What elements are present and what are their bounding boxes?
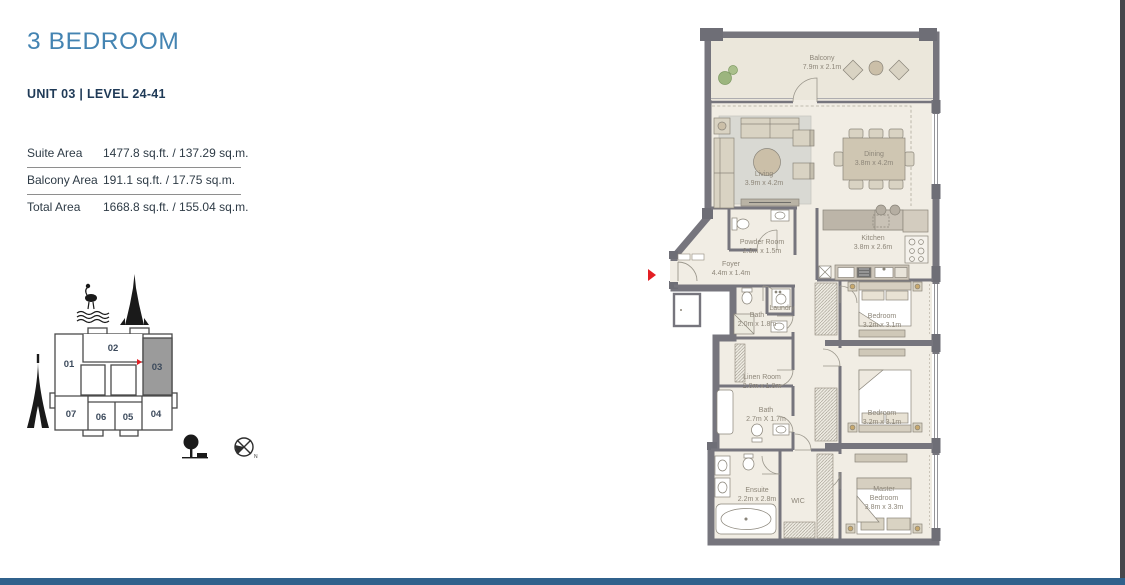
area-label: Balcony Area — [27, 173, 103, 187]
unit-label-03: 03 — [152, 362, 163, 373]
plant-icon — [719, 72, 732, 85]
room-dims-living: 3.9m x 4.2m — [745, 180, 784, 187]
room-label-bath-1: Bath — [750, 312, 765, 319]
room-label-wic: WIC — [791, 498, 805, 505]
area-row-balcony: Balcony Area 191.1 sq.ft. / 17.75 sq.m. — [27, 168, 241, 195]
unit-number-level: UNIT 03 | LEVEL 24-41 — [27, 87, 166, 101]
area-value: 1477.8 sq.ft. / 137.29 sq.m. — [103, 146, 248, 160]
room-dims-ensuite: 2.2m x 2.8m — [738, 496, 777, 503]
area-row-total: Total Area 1668.8 sq.ft. / 155.04 sq.m. — [27, 195, 241, 221]
unit-label-07: 07 — [66, 409, 77, 420]
floor-plan: Balcony 7.9m x 2.1m Living 3.9m x 4.2m D… — [645, 18, 965, 553]
area-value: 191.1 sq.ft. / 17.75 sq.m. — [103, 173, 241, 187]
unit-label-04: 04 — [151, 409, 162, 420]
entrance-arrow-icon — [648, 269, 656, 281]
service-box — [674, 294, 700, 326]
tower-icon — [27, 354, 49, 428]
room-label-bedroom-2: Bedroom — [868, 410, 897, 417]
room-label-linen-room: Linen Room — [743, 374, 781, 381]
room-dims-powder-room: 2.3m x 1.5m — [743, 248, 782, 255]
unit-label-01: 01 — [64, 359, 75, 370]
room-dims-bath-2: 2.7m X 1.7m — [746, 416, 786, 423]
room-label-bedroom-1: Bedroom — [868, 313, 897, 320]
room-dims-foyer: 4.4m x 1.4m — [712, 270, 751, 277]
unit-label-02: 02 — [108, 343, 119, 354]
floorplan-page: 3 BEDROOM UNIT 03 | LEVEL 24-41 Suite Ar… — [0, 0, 1125, 585]
room-dims-bedroom-1: 3.2m x 3.1m — [863, 322, 902, 329]
room-label-laundry: Laundry — [769, 305, 795, 312]
area-label: Suite Area — [27, 146, 103, 160]
right-edge-bar — [1120, 0, 1125, 578]
room-label-kitchen: Kitchen — [861, 235, 884, 242]
room-label-balcony: Balcony — [810, 55, 835, 62]
page-title: 3 BEDROOM — [27, 28, 179, 56]
room-label-bath-2: Bath — [759, 407, 774, 414]
area-row-suite: Suite Area 1477.8 sq.ft. / 137.29 sq.m. — [27, 141, 241, 168]
room-label-living: Living — [755, 171, 773, 178]
flamingo-icon — [77, 284, 109, 323]
unit-label-05: 05 — [123, 412, 134, 423]
room-dims-bath-1: 2.0m x 1.8m — [738, 321, 777, 328]
room-label-foyer: Foyer — [722, 261, 741, 268]
area-table: Suite Area 1477.8 sq.ft. / 137.29 sq.m. … — [27, 141, 241, 221]
burj-tower-icon — [120, 274, 149, 325]
area-value: 1668.8 sq.ft. / 155.04 sq.m. — [103, 200, 248, 214]
room-dims-bedroom-2: 3.2m x 3.1m — [863, 419, 902, 426]
area-label: Total Area — [27, 200, 103, 214]
compass-icon — [235, 438, 253, 456]
room-dims-balcony: 7.9m x 2.1m — [803, 64, 842, 71]
room-label-dining: Dining — [864, 151, 884, 158]
footer-bar — [0, 578, 1125, 585]
bedroom-divider-wall — [825, 340, 933, 346]
room-dims-kitchen: 3.8m x 2.6m — [854, 244, 893, 251]
room-label-ensuite: Ensuite — [745, 487, 768, 494]
compass-north-label: N — [254, 454, 258, 460]
key-plan: 01 02 03 04 05 06 07 N — [25, 272, 265, 462]
room-label-powder-room: Powder Room — [740, 239, 785, 246]
room-dims-master-bedroom: 3.8m x 3.3m — [865, 504, 904, 511]
room-dims-linen-room: 2.0m x 1.8m — [743, 383, 782, 390]
master-divider-wall — [825, 443, 933, 449]
unit-label-06: 06 — [96, 412, 107, 423]
tree-icon — [182, 435, 208, 459]
room-dims-dining: 3.8m x 4.2m — [855, 160, 894, 167]
dining-table — [843, 138, 905, 180]
